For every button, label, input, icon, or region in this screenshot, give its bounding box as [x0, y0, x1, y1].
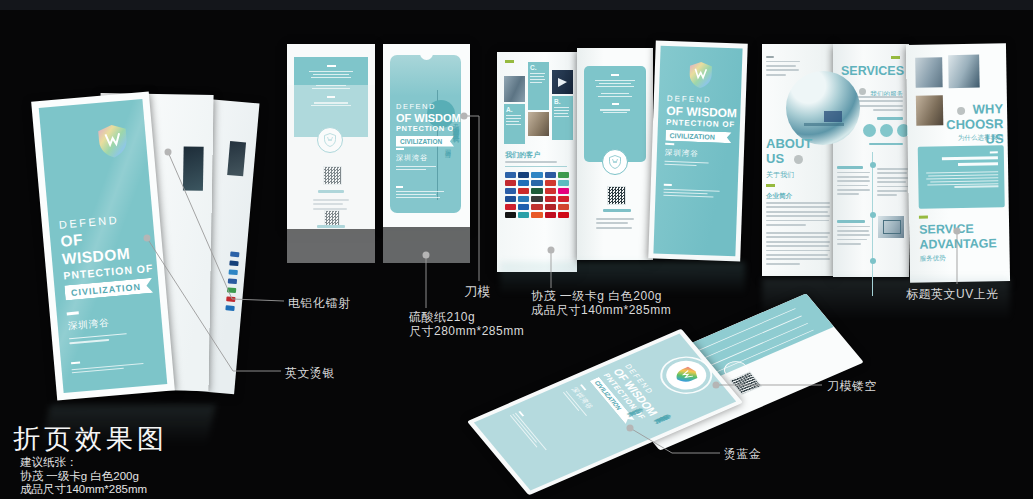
text-line-placeholder [766, 250, 830, 252]
about-subtitle: 关于我们 [766, 170, 794, 180]
text-line-placeholder [530, 73, 545, 74]
client-logo [225, 305, 234, 311]
client-logo [531, 180, 542, 186]
text-line-placeholder [664, 184, 672, 186]
text-line-placeholder [603, 209, 631, 212]
client-logo [505, 212, 516, 218]
shield-outline-icon [609, 155, 621, 169]
text-line-placeholder [596, 222, 628, 224]
service-circle [880, 124, 893, 137]
text-line-placeholder [612, 103, 619, 105]
text-line-placeholder [766, 211, 828, 213]
text-line-placeholder [595, 80, 635, 81]
back-sheet-logo-strip [225, 251, 239, 311]
text-line-placeholder [396, 186, 403, 188]
cover-teal-face: DEFEND OF WISDOM PNTECTION OF CIVILIZATI… [39, 99, 168, 393]
about-title: ABOUT US [766, 136, 812, 166]
client-logo [505, 196, 516, 202]
text-line-placeholder [506, 115, 521, 116]
panel-b-footer-block [396, 186, 444, 200]
cover-stack-mockup: DEFEND OF WISDOM PNTECTION OF CIVILIZATI… [40, 88, 280, 418]
text-line-placeholder [396, 148, 404, 150]
text-line-placeholder [877, 190, 907, 192]
text-line-placeholder [958, 162, 998, 166]
client-logo-grid [505, 172, 569, 218]
top-strip [0, 0, 1033, 10]
text-line-placeholder [877, 172, 907, 174]
text-line-placeholder [596, 86, 634, 87]
text-line-placeholder [766, 241, 830, 243]
text-line-placeholder [877, 117, 903, 120]
tracing-paper-overlay [287, 85, 375, 263]
text-line-placeholder [766, 220, 829, 222]
cover-title-block: DEFEND OF WISDOM PNTECTION OF CIVILIZATI… [665, 94, 737, 143]
text-line-placeholder [554, 116, 569, 117]
text-line-placeholder [877, 186, 908, 188]
annotation-silver-foil: 英文烫银 [285, 365, 335, 382]
annotation-laser: 电铝化镭射 [288, 295, 351, 312]
text-line-placeholder [506, 121, 519, 122]
text-line-placeholder [877, 177, 908, 179]
about-section-heading: 企业简介 [766, 192, 792, 201]
text-line-placeholder [766, 236, 828, 238]
text-line-placeholder [530, 82, 542, 83]
text-line-placeholder [554, 113, 568, 114]
text-line-placeholder [506, 118, 521, 119]
client-logo [531, 196, 542, 202]
advantage-subtitle: 服务优势 [920, 254, 946, 263]
cover-title-block: DEFEND OF WISDOM PNTECTION OF CIVILIZATI… [58, 211, 159, 301]
client-logo [228, 269, 237, 275]
client-logo [226, 296, 235, 302]
shield-logo-holographic-icon [688, 61, 713, 90]
client-logo [531, 188, 542, 194]
text-line-placeholder [837, 180, 870, 182]
text-line-placeholder [766, 206, 830, 208]
section-dot-icon [794, 155, 803, 164]
text-line-placeholder [71, 361, 80, 364]
cover-brand: 深圳湾谷 [665, 148, 709, 160]
cover-ribbon-text: CIVILIZATION [669, 132, 715, 141]
service-circles [863, 124, 910, 137]
client-logo [545, 212, 556, 218]
shield-logo-holographic-icon [96, 122, 129, 159]
text-line-placeholder [510, 415, 538, 448]
about-title-line2: US [766, 151, 784, 166]
about-panel: ABOUT US 关于我们 企业简介 [762, 44, 834, 276]
trifold-clients-panel: A. C. B. 我们的客户 [497, 52, 577, 272]
about-title-line1: ABOUT [766, 136, 812, 151]
text-line-placeholder [954, 186, 998, 188]
panel-b-brand-block: 深圳湾谷 [396, 148, 436, 172]
timeline-line [872, 152, 873, 296]
advantage-title: SERVICE ADVANTAGE [919, 221, 997, 252]
text-line-placeholder [515, 413, 547, 450]
client-logo [558, 196, 569, 202]
text-line-placeholder [766, 224, 806, 226]
client-logo [558, 188, 569, 194]
why-teal-block [918, 145, 1005, 208]
client-logo [518, 188, 529, 194]
client-logo [531, 204, 542, 210]
text-line-placeholder [396, 191, 444, 192]
contact-teal-block [584, 66, 646, 162]
section-dot-icon [859, 88, 866, 95]
services-title: SERVICES [841, 64, 903, 78]
text-line-placeholder [530, 79, 545, 80]
client-logo [228, 278, 237, 284]
photo-signing [916, 95, 944, 125]
cover-brand-block: 深圳湾谷 [67, 307, 128, 346]
client-logo [518, 204, 529, 210]
text-line-placeholder [67, 311, 79, 315]
text-line-placeholder [837, 176, 869, 178]
timeline-paragraph [877, 168, 908, 199]
block-label-b: B. [554, 98, 571, 105]
client-logo [558, 204, 569, 210]
text-line-placeholder [873, 109, 903, 111]
annotation-uv: 标题英文UV上光 [906, 286, 999, 303]
photo-people [504, 76, 525, 102]
text-line-placeholder [837, 172, 870, 174]
text-line-placeholder [837, 185, 868, 187]
text-line-placeholder [766, 232, 830, 234]
text-line-placeholder [311, 77, 351, 78]
text-line-placeholder [396, 166, 436, 167]
text-line-placeholder [766, 56, 774, 58]
shield-logo-rainbow-icon [671, 365, 702, 386]
back-sheet-photo-fragment [227, 141, 246, 176]
trifold-contact-panel [577, 48, 653, 260]
text-line-placeholder [942, 156, 998, 160]
cover-footer-block [508, 411, 551, 453]
trifold-cover-panel: DEFEND OF WISDOM PNTECTION OF CIVILIZATI… [648, 40, 748, 261]
contact-ring-logo [602, 149, 628, 175]
text-line-placeholder [611, 74, 619, 76]
block-label-c: C. [530, 64, 547, 71]
die-notch [420, 47, 433, 60]
client-logo [545, 188, 556, 194]
text-line-placeholder [554, 110, 569, 111]
client-logo [545, 172, 556, 178]
text-line-placeholder [506, 124, 521, 125]
text-line-placeholder [505, 161, 557, 163]
text-line-placeholder [664, 164, 696, 166]
text-line-placeholder [518, 411, 524, 417]
client-logo [518, 196, 529, 202]
flat-card-front: DEFEND OF WISDOM PNTECTION OF CIVILIZATI… [467, 329, 743, 496]
cover-ribbon: CIVILIZATION [665, 130, 731, 143]
text-line-placeholder [837, 193, 859, 195]
client-logo [505, 188, 516, 194]
tracing-paper-band [383, 227, 470, 263]
text-line-placeholder [766, 215, 830, 217]
client-logo [545, 196, 556, 202]
text-line-placeholder [69, 333, 127, 340]
text-line-placeholder [396, 197, 440, 198]
front-card-teal-face: DEFEND OF WISDOM PNTECTION OF CIVILIZATI… [474, 334, 736, 491]
text-line-placeholder [837, 234, 870, 236]
annotation-paper-top: 硫酸纸210g 尺寸280mm*285mm [409, 310, 524, 338]
text-line-placeholder [69, 339, 109, 344]
clients-heading: 我们的客户 [505, 150, 540, 160]
timeline-dot [870, 258, 876, 264]
text-line-placeholder [869, 143, 903, 145]
text-line-placeholder [766, 254, 828, 256]
text-line-placeholder [601, 93, 629, 94]
text-line-placeholder [837, 239, 867, 241]
text-line-placeholder [766, 258, 830, 260]
photo-lobby-circle [786, 71, 860, 145]
section-dot-icon [957, 106, 965, 114]
cover-title-line1: DEFEND [396, 102, 461, 111]
client-logo [227, 287, 236, 293]
client-logo [518, 172, 529, 178]
client-logo [505, 204, 516, 210]
photo-laptop [948, 55, 980, 89]
why-title-line1: WHY [973, 101, 1004, 117]
timeline-item [837, 220, 870, 247]
annotation-die-line: 刀模 [464, 283, 491, 301]
annotation-paper-top-line2: 尺寸280mm*285mm [409, 324, 524, 338]
text-line-placeholder [309, 71, 353, 72]
why-subtitle: 为什么选择我们 [943, 133, 1003, 143]
text-line-placeholder [596, 227, 632, 229]
cover-brand: 深圳湾谷 [67, 315, 126, 333]
block-label-a: A. [506, 106, 523, 113]
client-logo [518, 180, 529, 186]
photo-office-small [878, 216, 904, 238]
client-logo [545, 204, 556, 210]
trifold-cover-teal: DEFEND OF WISDOM PNTECTION OF CIVILIZATI… [653, 46, 742, 257]
text-line-placeholder [327, 65, 336, 67]
text-line-placeholder [530, 76, 544, 77]
feature-block-a: A. [504, 104, 525, 144]
text-line-placeholder [313, 74, 349, 75]
text-line-placeholder [665, 143, 674, 145]
feature-block-c: C. [528, 62, 549, 110]
client-logo [531, 212, 542, 218]
annotation-paper-main: 协茂 一级卡g 白色200g 成品尺寸140mm*285mm [531, 289, 671, 317]
timeline-item [837, 166, 870, 198]
text-line-placeholder [603, 112, 627, 113]
text-line-placeholder [837, 226, 870, 228]
page-title: 折页效果图 [13, 421, 168, 457]
text-line-placeholder [766, 74, 786, 76]
text-line-placeholder [990, 151, 998, 153]
annotation-foil-blue-gold: 烫蓝金 [724, 446, 762, 463]
footer-notes: 建议纸张： 协茂 一级卡g 白色200g 成品尺寸140mm*285mm [20, 456, 147, 497]
client-logo [230, 251, 239, 257]
text-line-placeholder [837, 230, 869, 232]
timeline-dot [870, 162, 876, 168]
text-line-placeholder [837, 220, 865, 223]
text-line-placeholder [766, 202, 830, 204]
text-line-placeholder [600, 109, 630, 110]
text-line-placeholder [598, 96, 632, 97]
annotation-paper-main-line1: 协茂 一级卡g 白色200g [531, 289, 671, 303]
client-logo [558, 172, 569, 178]
client-logo [531, 172, 542, 178]
clients-divider [505, 166, 567, 167]
cover-brand-block: 深圳湾谷 [664, 143, 709, 168]
text-line-placeholder [766, 69, 799, 71]
text-line-placeholder [599, 83, 631, 84]
mockup-presentation: DEFEND OF WISDOM PNTECTION OF CIVILIZATI… [0, 0, 1033, 499]
service-circle [863, 124, 876, 137]
text-line-placeholder [837, 166, 863, 169]
footer-note-size: 成品尺寸140mm*285mm [20, 483, 147, 497]
text-line-placeholder [596, 218, 634, 220]
why-panel: WHY CHOOSR US 为什么选择我们 SERVICE ADVANTAGE … [906, 43, 1010, 283]
text-line-placeholder [396, 194, 436, 195]
text-line-placeholder [837, 243, 861, 245]
middle-sheet-photo-fragment [183, 146, 204, 190]
annotation-paper-top-line1: 硫酸纸210g [409, 310, 524, 324]
text-line-placeholder [877, 194, 897, 196]
photo-handshake [915, 57, 943, 87]
client-logo [505, 172, 516, 178]
client-logo [545, 180, 556, 186]
advantage-title-line1: SERVICE [919, 221, 997, 237]
text-line-placeholder [766, 65, 796, 67]
photo-paper-plane [552, 70, 573, 94]
qr-code [607, 186, 626, 205]
text-line-placeholder [877, 168, 908, 170]
text-line-placeholder [396, 169, 426, 170]
client-logo [518, 212, 529, 218]
text-line-placeholder [554, 107, 569, 108]
cover-footer-block [663, 184, 719, 200]
vertical-tagline: 专业的知识产权全产业服务机构 [451, 118, 460, 218]
timeline-dot [870, 212, 876, 218]
vertical-brand: 深圳湾谷 [443, 144, 452, 184]
advantage-title-line2: ADVANTAGE [919, 236, 997, 252]
flat-panel-front: DEFEND OF WISDOM PNTECTION OF CIVILIZATI… [383, 44, 470, 227]
client-logo [229, 260, 238, 266]
footer-note-paper: 协茂 一级卡g 白色200g [20, 470, 147, 484]
text-line-placeholder [930, 180, 998, 182]
text-line-placeholder [877, 181, 906, 183]
photo-stamp [528, 112, 549, 136]
feature-block-b: B. [552, 96, 573, 140]
text-line-placeholder [766, 61, 800, 63]
footer-note-label: 建议纸张： [20, 456, 147, 470]
text-line-placeholder [766, 263, 800, 265]
text-line-placeholder [663, 195, 713, 198]
annotation-paper-main-line2: 成品尺寸140mm*285mm [531, 303, 671, 317]
client-logo [558, 180, 569, 186]
cover-ribbon-text: CIVILIZATION [400, 138, 442, 145]
cover-brand: 深圳湾谷 [396, 153, 436, 163]
client-logo [558, 212, 569, 218]
text-line-placeholder [766, 245, 829, 247]
text-line-placeholder [512, 414, 537, 443]
client-logo [505, 180, 516, 186]
annotation-die-cut: 刀模镂空 [827, 378, 877, 395]
cover-title-line3: PNTECTION OF [666, 118, 737, 129]
text-line-placeholder [837, 189, 870, 191]
